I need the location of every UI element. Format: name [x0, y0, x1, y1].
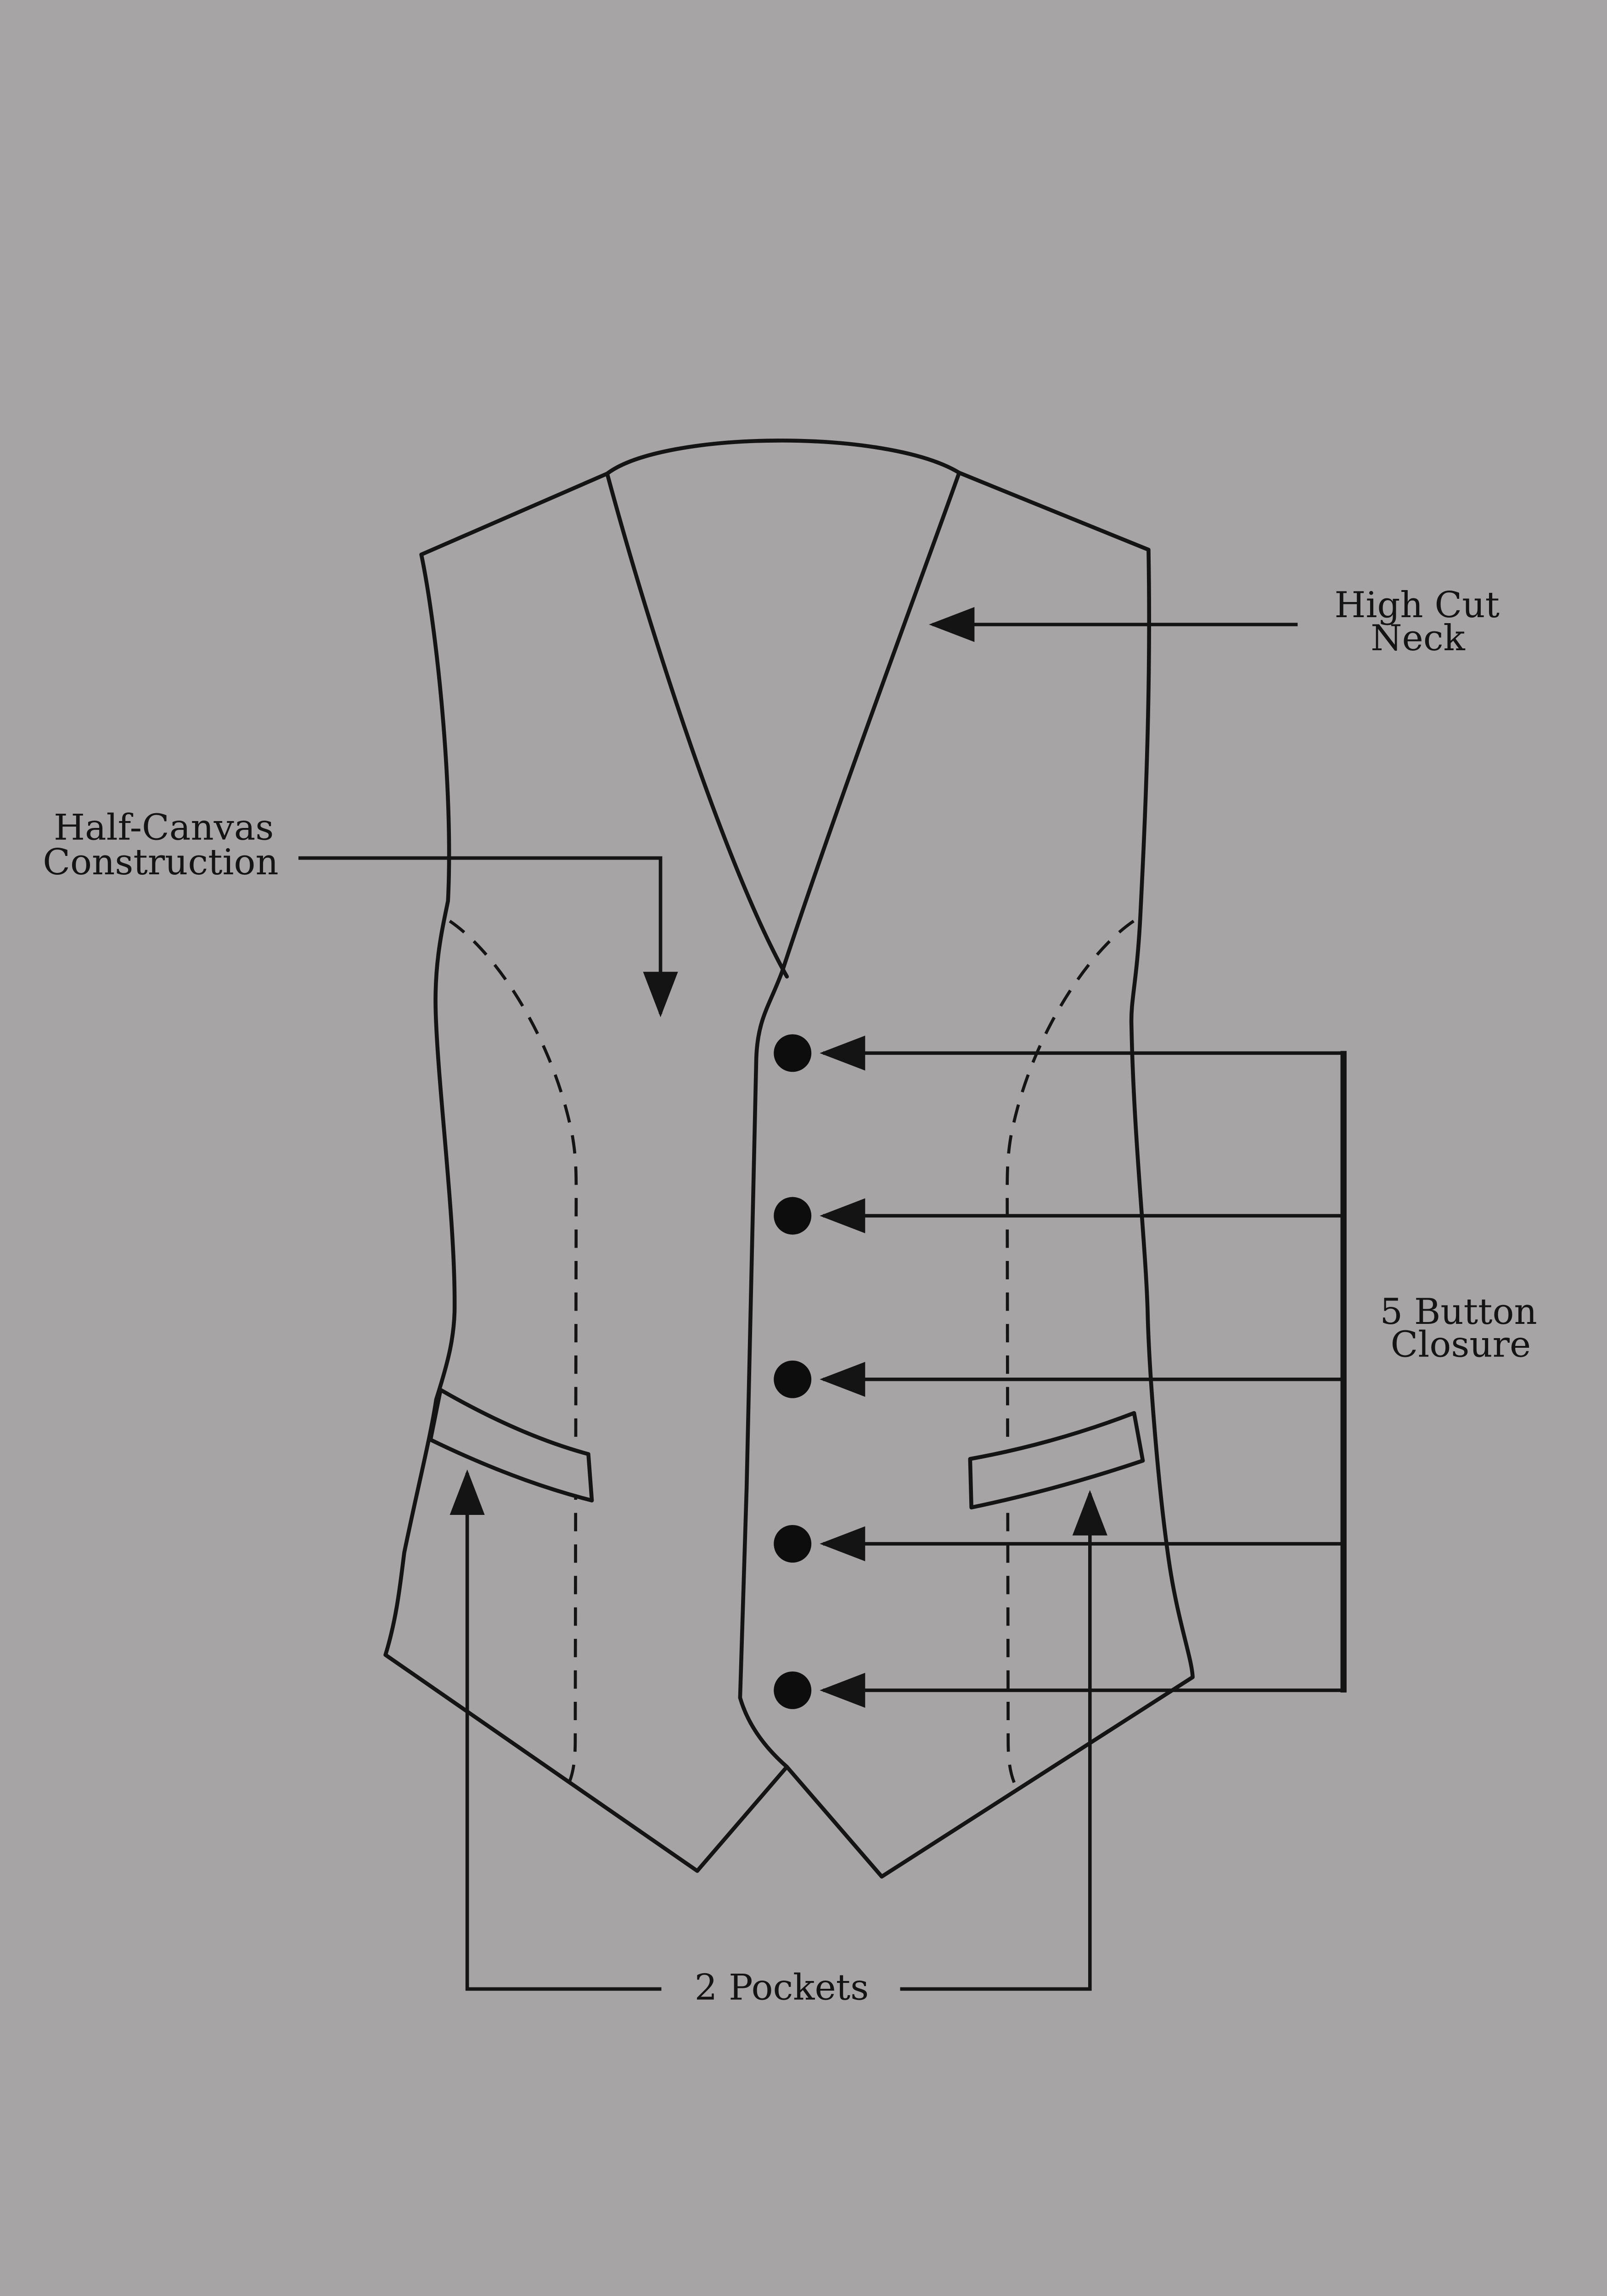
label-button-closure-line2: Closure — [1391, 1324, 1531, 1365]
front-edge-line — [740, 473, 959, 1767]
button-dot-5 — [774, 1671, 811, 1709]
label-half-canvas-line2: Construction — [43, 842, 278, 883]
label-pockets: 2 Pockets — [695, 1967, 869, 2008]
left-pocket-welt — [431, 1390, 592, 1501]
button-dot-4 — [774, 1525, 811, 1563]
button-dot-1 — [774, 1034, 811, 1072]
vest-diagram: High Cut Neck Half-Canvas Construction 5… — [0, 0, 1607, 2296]
button-dot-3 — [774, 1361, 811, 1398]
vest-outline — [386, 440, 1193, 1876]
half-canvas-arrow — [298, 858, 661, 1014]
pocket-arrow-right — [900, 1493, 1090, 1989]
left-lapel-line — [607, 473, 787, 976]
diagram-canvas: High Cut Neck Half-Canvas Construction 5… — [0, 0, 1607, 2296]
right-pocket-welt — [970, 1413, 1143, 1508]
label-high-cut-neck-line2: Neck — [1371, 618, 1465, 659]
button-dot-2 — [774, 1197, 811, 1235]
